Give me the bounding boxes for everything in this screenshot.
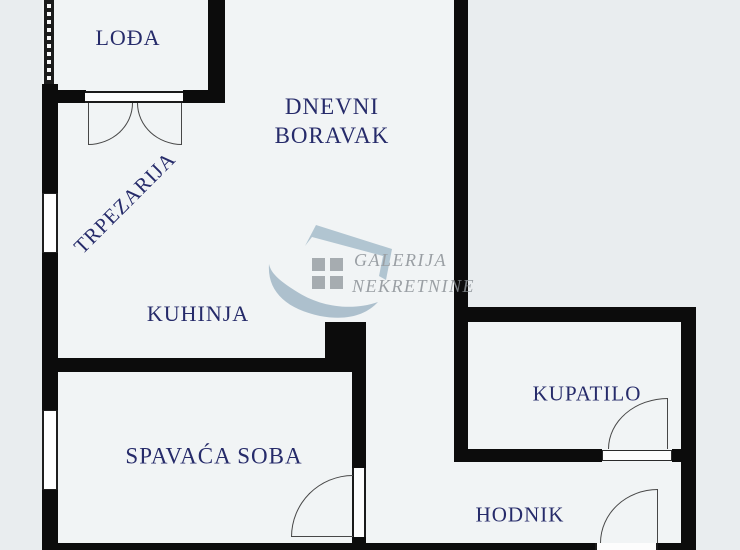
label-dnevni-boravak: DNEVNI BORAVAK [275,92,390,150]
kupatilo-door-threshold [602,450,672,461]
watermark-text-line2: NEKRETNINE [352,276,475,297]
bedroom-window [42,410,58,490]
wall-bottom-right [658,543,696,550]
wall-bedroom-right-upper [352,372,366,468]
hodnik-door-threshold [595,543,658,550]
wall-kupatilo-top [454,307,696,322]
house-swoosh-logo-icon [255,210,485,340]
wall-bedroom-top [42,358,366,372]
wall-kupatilo-bottom-left [454,449,602,462]
dining-window [42,193,58,253]
wall-left-lower [42,490,58,550]
label-kupatilo: KUPATILO [533,382,642,407]
floor-plan: GALERIJA NEKRETNINE LOĐA DNEVNI BORAVA [0,0,740,550]
label-kuhinja: KUHINJA [147,301,249,327]
wall-left-middle [42,253,58,410]
label-lodja: LOĐA [95,25,160,51]
label-spavaca-soba: SPAVAĆA SOBA [125,442,302,471]
loggia-glazed-railing [44,0,54,85]
label-boravak-line: BORAVAK [275,121,390,150]
wall-loggia-right [208,0,225,103]
label-dnevni-line: DNEVNI [275,92,390,121]
wall-loggia-bottom-right-stub [183,90,225,103]
loggia-door-threshold [85,91,183,103]
watermark-text-line1: GALERIJA [354,250,447,271]
wall-outer-right [681,307,696,550]
label-hodnik: HODNIK [476,503,565,528]
wall-bottom-left [42,543,595,550]
agency-watermark: GALERIJA NEKRETNINE [255,210,485,340]
bedroom-door-threshold [352,468,366,537]
wall-loggia-bottom-left-stub [56,90,86,103]
wall-kupatilo-bottom-right [672,449,696,462]
